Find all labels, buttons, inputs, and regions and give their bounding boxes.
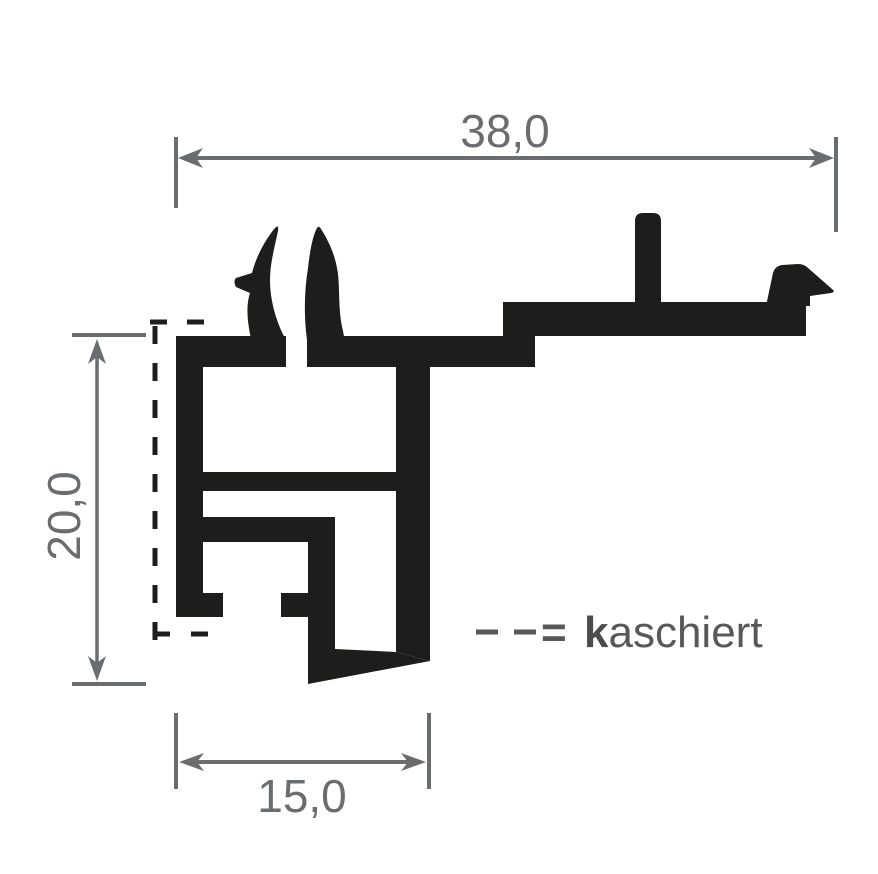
profile-left-wall — [176, 336, 203, 617]
technical-drawing-page: 38,0 20,0 15,0 — [0, 0, 878, 874]
dimension-label-left: 20,0 — [38, 471, 90, 561]
profile-left-foot — [176, 593, 223, 617]
legend-equals: = — [541, 608, 567, 657]
profile-divider — [200, 472, 403, 491]
profile-right-hook — [766, 264, 834, 306]
profile-upper-bar — [503, 302, 806, 336]
dimension-bottom-width: 15,0 — [176, 713, 429, 822]
dimension-left-height: 20,0 — [38, 335, 146, 684]
profile-left-prong — [235, 227, 287, 347]
dimension-label-bottom: 15,0 — [257, 770, 347, 822]
legend-term-bold-prefix: k — [584, 608, 609, 657]
profile-right-wall — [396, 336, 430, 661]
profile-technical-drawing: 38,0 20,0 15,0 — [0, 0, 878, 874]
legend: = kaschiert — [476, 608, 763, 657]
profile-right-prong — [305, 227, 346, 347]
dimension-label-top: 38,0 — [460, 105, 550, 157]
profile-post — [635, 213, 661, 306]
legend-term-rest: aschiert — [608, 608, 762, 657]
dimension-top-width: 38,0 — [176, 105, 836, 232]
legend-term: kaschiert — [584, 608, 763, 657]
